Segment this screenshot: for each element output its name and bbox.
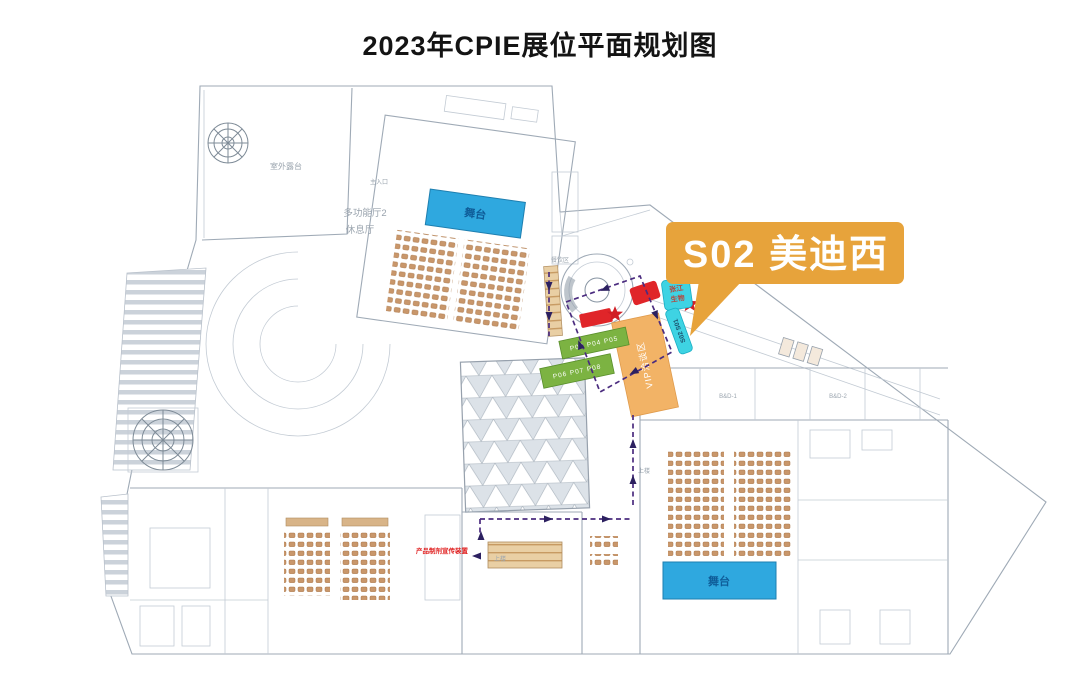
seat-block bbox=[284, 530, 330, 596]
stage-bottom: 舞台 bbox=[663, 562, 776, 599]
booth-s02-marker: S02 S01 bbox=[665, 307, 694, 355]
callout-label: S02 美迪西 bbox=[683, 234, 889, 276]
terrace-label: 室外露台 bbox=[270, 161, 302, 171]
seat-block bbox=[734, 448, 792, 558]
callout-bubble: S02 美迪西 bbox=[666, 222, 904, 336]
seat-block bbox=[668, 448, 724, 558]
dining-label: 餐饮区 bbox=[551, 256, 569, 264]
bottom-right-hall: 舞台 bbox=[663, 448, 792, 599]
outdoor-terrace: 室外露台 bbox=[202, 88, 352, 240]
stage-bottom-label: 舞台 bbox=[708, 574, 730, 588]
bottom-center-tables: 上楼 bbox=[488, 536, 618, 568]
entrance-label: 主入口 bbox=[370, 178, 388, 186]
bottom-left-seating: 产品制剂宣传装置 bbox=[284, 518, 469, 600]
seat-block bbox=[340, 530, 390, 600]
floor-plan: 室外露台 舞台 bbox=[0, 0, 1080, 696]
lounge-label: 休息厅 bbox=[346, 224, 375, 236]
dining-counter bbox=[544, 266, 563, 337]
upstairs-label: 上楼 bbox=[638, 467, 650, 475]
multifunction-hall: 舞台 bbox=[357, 87, 579, 343]
hall2-label: 多功能厅2 bbox=[343, 207, 386, 219]
floor-plan-page: 2023年CPIE展位平面规划图 bbox=[0, 0, 1080, 696]
seat-block bbox=[453, 239, 530, 331]
stage-top: 舞台 bbox=[425, 189, 525, 238]
room-label: B&D-2 bbox=[829, 394, 847, 400]
seat-block bbox=[386, 230, 459, 320]
upstairs-label: 上楼 bbox=[494, 555, 506, 563]
crosswalk-paths bbox=[101, 268, 206, 596]
room-label: B&D-1 bbox=[719, 394, 737, 400]
promo-note: 产品制剂宣传装置 bbox=[416, 546, 469, 555]
